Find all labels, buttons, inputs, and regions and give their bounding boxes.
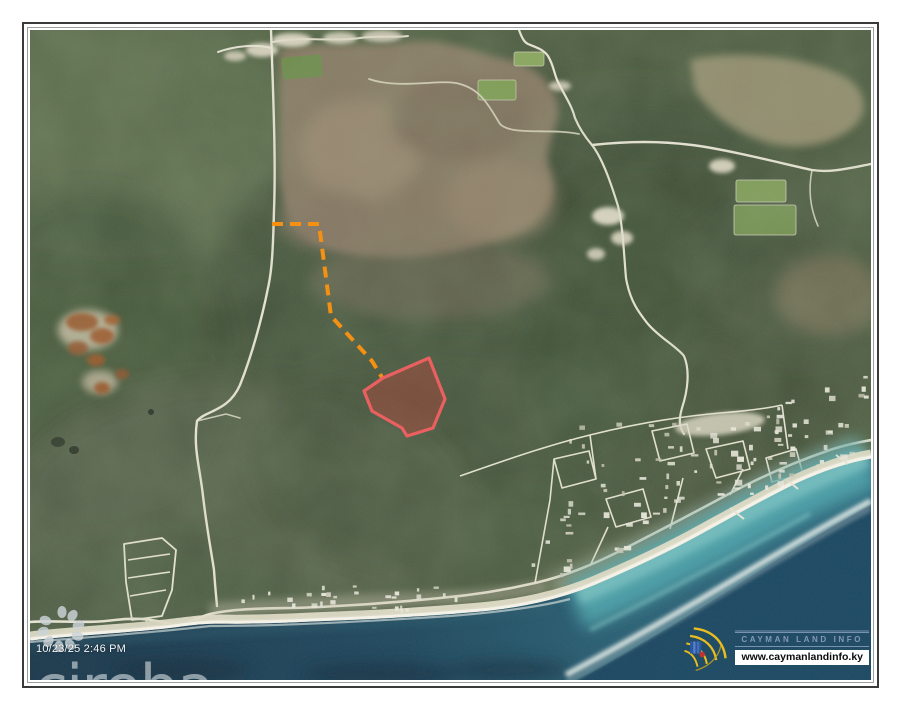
satellite-imagery: [30, 30, 871, 680]
map-outer-frame: cireba 10/23/25 2:46 PM CAYMAN LAND INFO…: [22, 22, 879, 688]
provider-logo: CAYMAN LAND INFO www.caymanlandinfo.ky: [677, 621, 869, 675]
fan-arcs-icon: [677, 621, 733, 675]
provider-website[interactable]: www.caymanlandinfo.ky: [735, 650, 869, 665]
provider-name: CAYMAN LAND INFO: [735, 632, 869, 647]
timestamp-watermark: 10/23/25 2:46 PM: [36, 643, 126, 655]
page: { "frame": { "outer_border_color": "#3a3…: [0, 0, 905, 710]
map-canvas[interactable]: cireba 10/23/25 2:46 PM CAYMAN LAND INFO…: [30, 30, 871, 680]
grain-texture: [30, 30, 871, 680]
map-inner-frame: cireba 10/23/25 2:46 PM CAYMAN LAND INFO…: [27, 27, 874, 683]
brand-watermark: cireba: [34, 662, 213, 680]
